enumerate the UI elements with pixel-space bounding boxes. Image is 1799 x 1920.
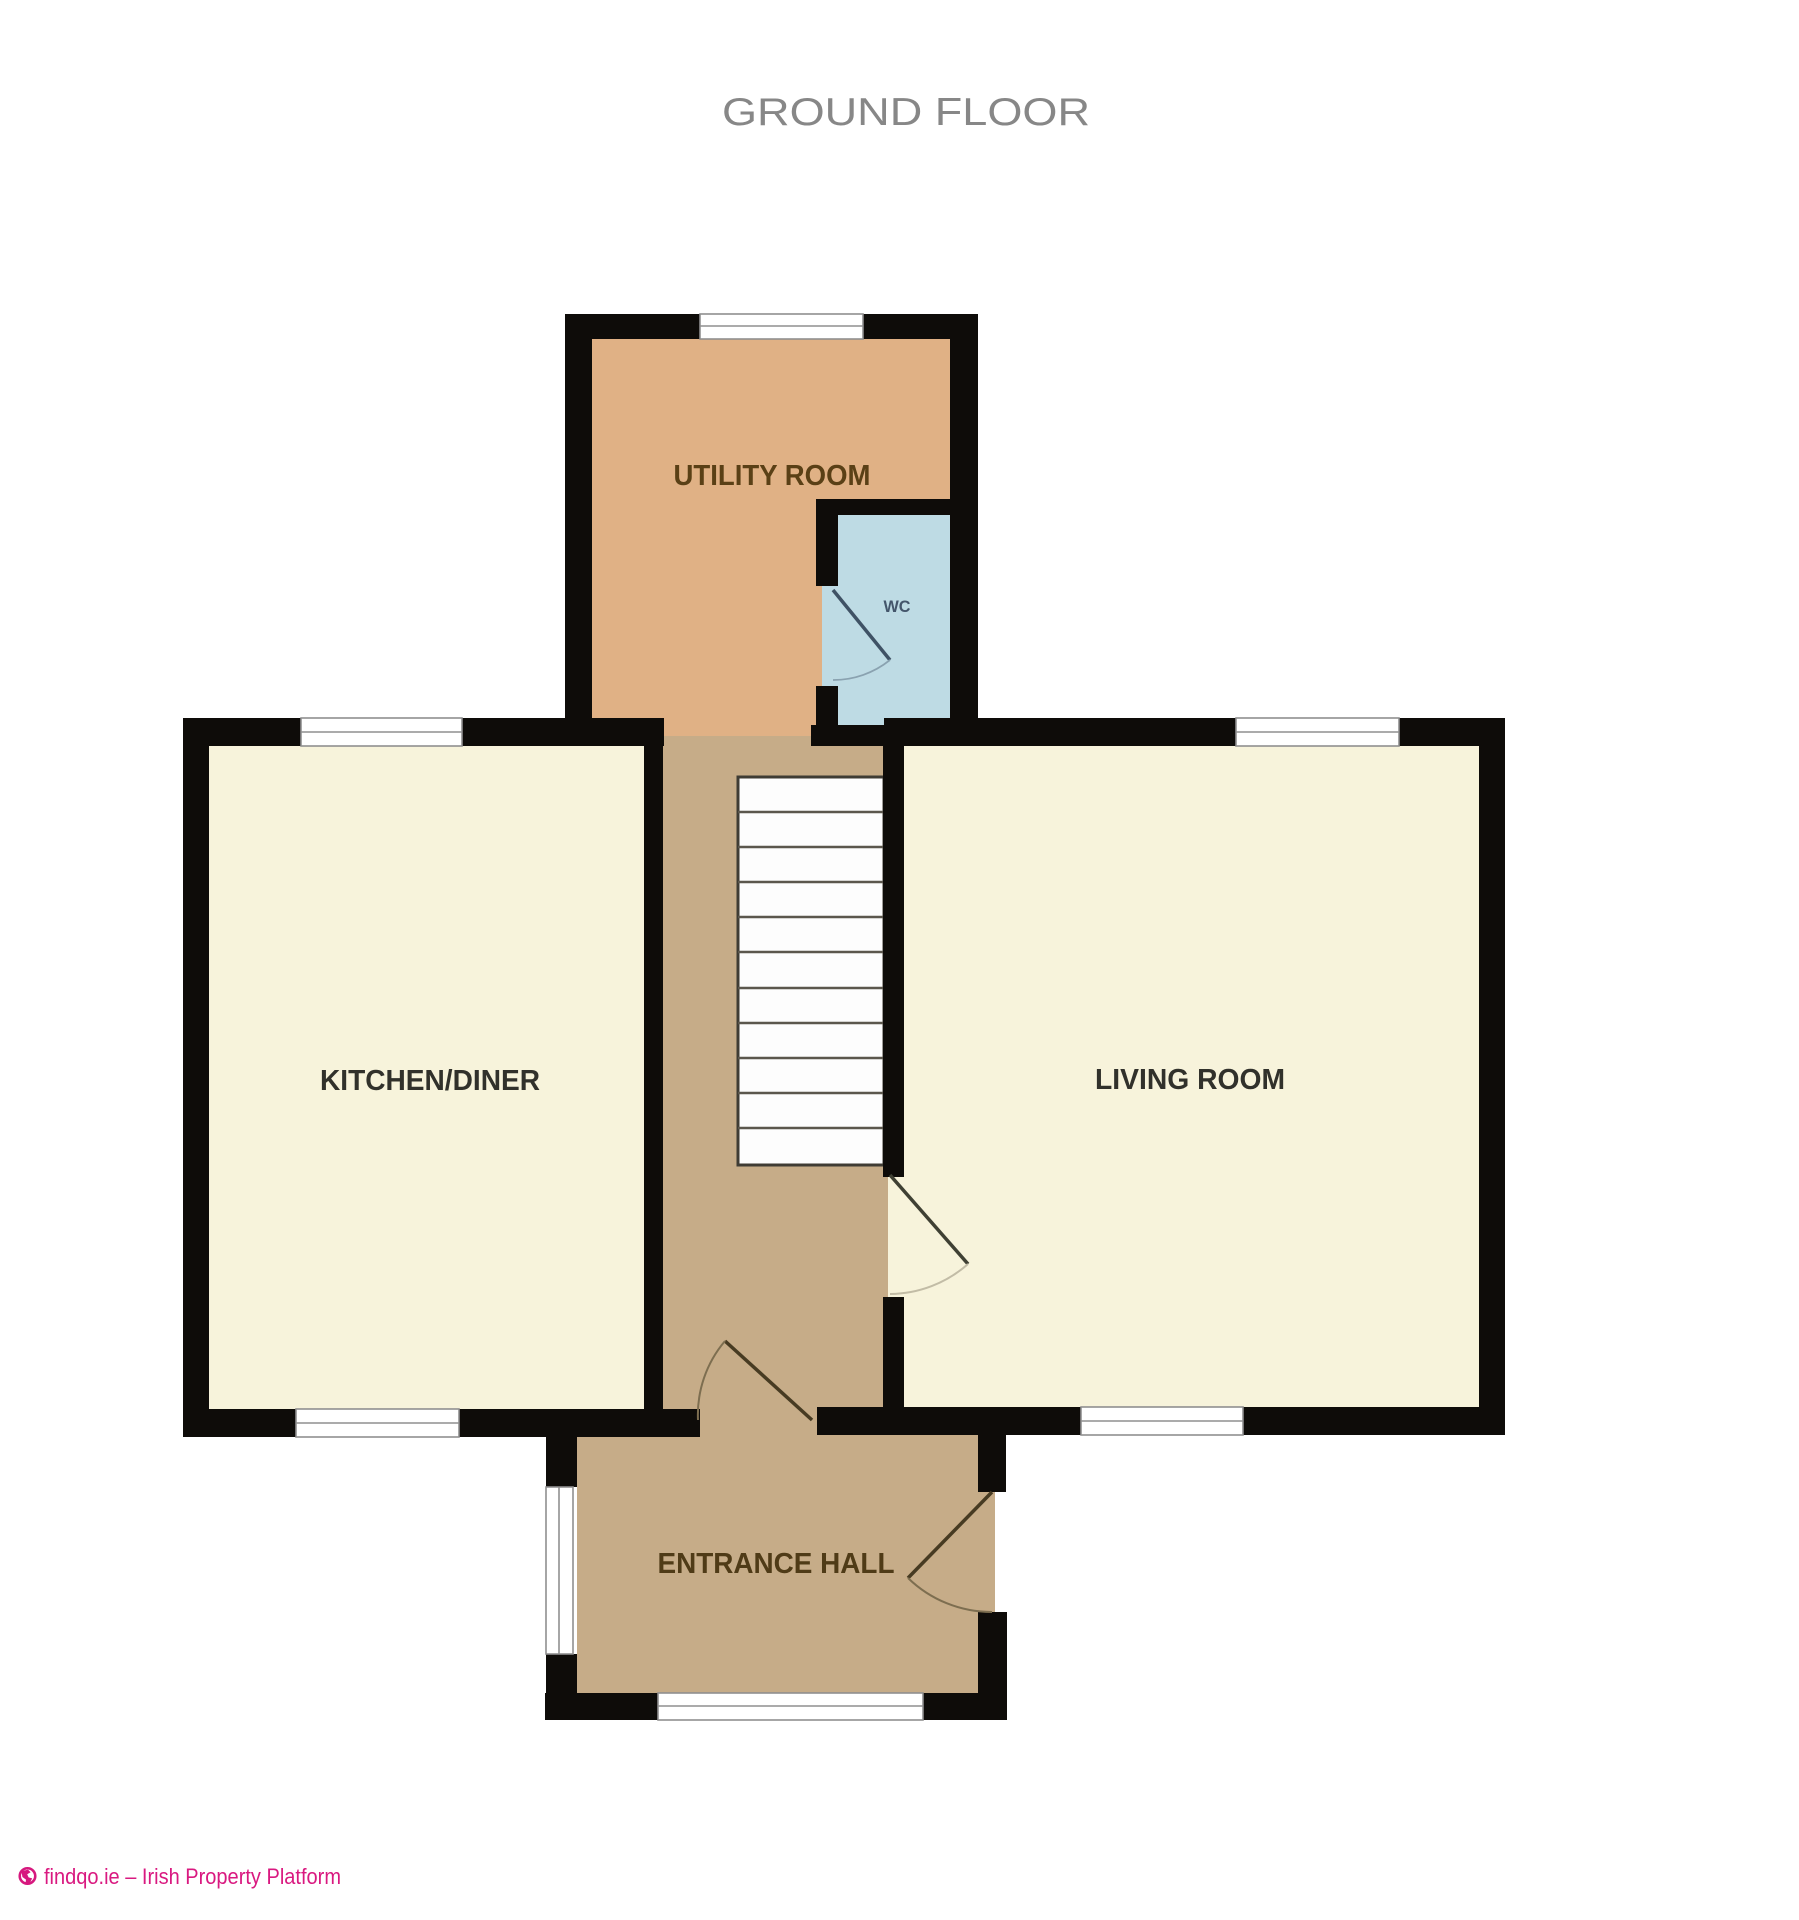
svg-text:findqo.ie – Irish Property Pla: findqo.ie – Irish Property Platform (44, 1864, 341, 1889)
svg-text:GROUND FLOOR: GROUND FLOOR (722, 91, 1090, 134)
svg-text:UTILITY ROOM: UTILITY ROOM (674, 460, 871, 492)
svg-text:LIVING ROOM: LIVING ROOM (1095, 1064, 1285, 1096)
svg-text:KITCHEN/DINER: KITCHEN/DINER (320, 1065, 540, 1097)
svg-text:WC: WC (884, 597, 911, 616)
svg-text:ENTRANCE HALL: ENTRANCE HALL (658, 1548, 895, 1580)
